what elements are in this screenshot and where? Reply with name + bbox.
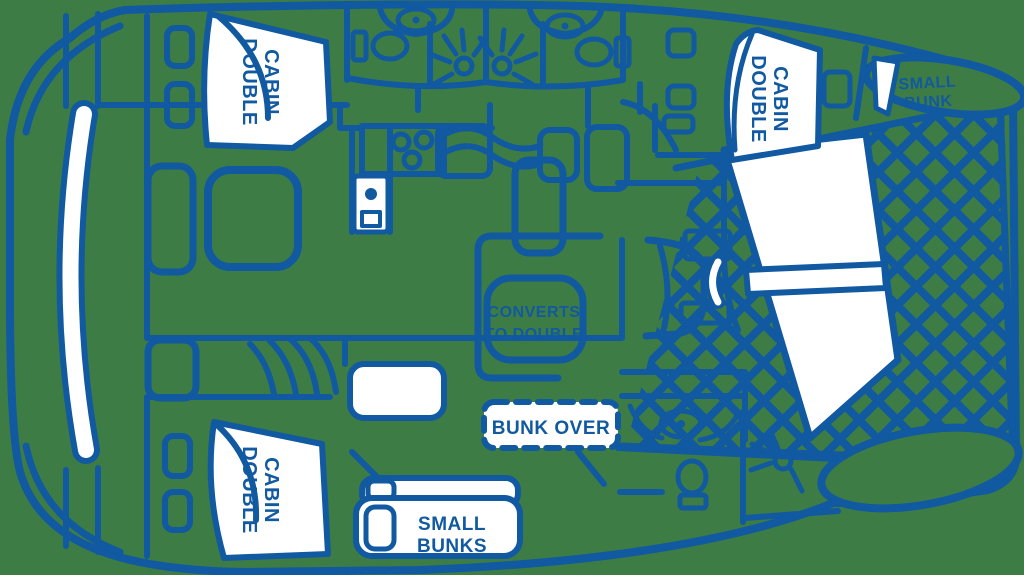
label-bunk-over: BUNK OVER xyxy=(492,418,611,439)
small-bunks-line: BUNKS xyxy=(417,536,487,557)
label-double-cabin-top-right: DOUBLE CABIN xyxy=(747,55,791,142)
small-bunks-lower-pillow xyxy=(366,507,394,549)
hull-locker xyxy=(148,340,196,398)
toilet-icon xyxy=(577,39,611,65)
forward-bed-pillow xyxy=(746,264,886,294)
stove-icon xyxy=(393,134,409,150)
hull-locker xyxy=(668,30,694,56)
cabin-label-line: DOUBLE xyxy=(747,55,769,142)
label-double-cabin-bottom-left: DOUBLE CABIN xyxy=(238,446,282,533)
stairs-icon xyxy=(250,338,336,394)
hull-locker xyxy=(664,116,693,132)
cabin-label-line: CABIN xyxy=(769,66,791,132)
sink-drain xyxy=(677,420,685,428)
sink-drain xyxy=(562,23,569,30)
hull-locker xyxy=(668,86,694,108)
toilet-base xyxy=(680,495,706,508)
catamaran-floorplan: DOUBLE CABIN DOUBLE CABIN DOUBLE CABIN S… xyxy=(0,0,1024,575)
salon-chair xyxy=(587,127,627,189)
label-small-bunks: SMALL BUNKS xyxy=(417,514,487,557)
hull-locker xyxy=(165,436,190,476)
floorplan-svg: DOUBLE CABIN DOUBLE CABIN DOUBLE CABIN S… xyxy=(0,0,1024,575)
salon-table xyxy=(208,170,298,267)
stove-icon xyxy=(404,152,420,168)
fridge-knob xyxy=(365,188,377,200)
hull-locker xyxy=(165,492,190,530)
toilet-icon xyxy=(373,33,407,59)
small-bunk-line: SMALL xyxy=(898,74,956,94)
chart-table xyxy=(350,364,444,418)
label-converts-to-double: CONVERTS TO DOUBLE xyxy=(485,304,583,343)
converts-line: TO DOUBLE xyxy=(485,326,583,343)
stove-icon xyxy=(416,132,432,148)
cabin-label-line: DOUBLE xyxy=(238,446,260,533)
cabin-label-line: DOUBLE xyxy=(238,38,260,125)
converts-line: CONVERTS xyxy=(488,304,581,321)
hull-locker xyxy=(167,28,192,66)
small-bunk-line: BUNK xyxy=(904,93,953,113)
sink-drain xyxy=(413,17,420,24)
small-bunk-panel xyxy=(874,58,898,114)
cabin-label-line: CABIN xyxy=(260,457,282,523)
fridge-drawer xyxy=(362,212,380,226)
shower-icon xyxy=(494,58,510,74)
shower-icon xyxy=(456,58,472,74)
hull-locker xyxy=(824,72,850,106)
toilet-icon xyxy=(678,461,706,493)
toilet-tank xyxy=(353,32,366,60)
salon-chair xyxy=(540,130,577,180)
cabin-label-line: CABIN xyxy=(260,49,282,115)
shower-icon xyxy=(775,453,791,469)
salon-bench xyxy=(148,166,193,272)
small-bunks-line: SMALL xyxy=(418,514,486,535)
label-double-cabin-top-left: DOUBLE CABIN xyxy=(238,38,282,125)
